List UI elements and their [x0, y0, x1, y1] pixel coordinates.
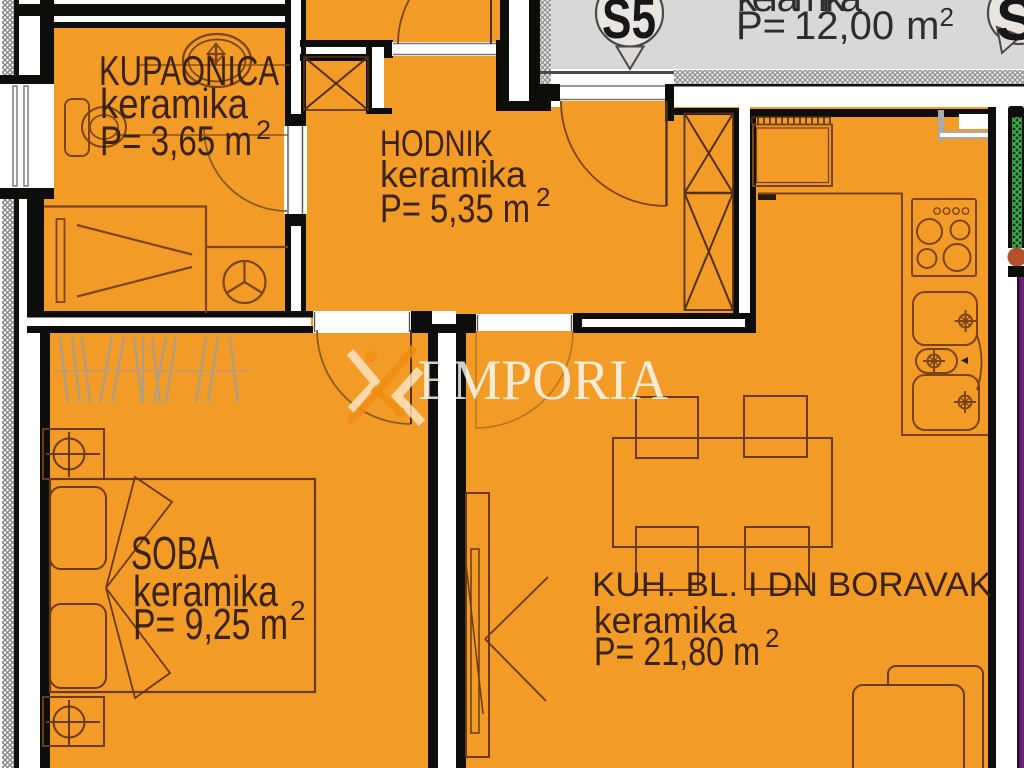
svg-text:2: 2 — [765, 623, 779, 653]
svg-text:S5: S5 — [602, 0, 656, 51]
svg-text:2: 2 — [256, 115, 271, 145]
svg-text:S: S — [996, 0, 1024, 53]
svg-text:2: 2 — [536, 182, 550, 212]
svg-text:P=12,00m2: P=12,00m2 — [736, 2, 954, 48]
svg-text:P= 5,35 m: P= 5,35 m — [380, 187, 530, 231]
svg-text:2: 2 — [290, 595, 306, 626]
svg-text:P= 9,25 m: P= 9,25 m — [133, 600, 288, 649]
svg-text:EMPORIA: EMPORIA — [418, 349, 668, 412]
svg-text:KUH. BL. I DN BORAVAK: KUH. BL. I DN BORAVAK — [592, 566, 992, 604]
svg-text:P= 3,65 m: P= 3,65 m — [100, 117, 252, 164]
svg-text:P= 21,80 m: P= 21,80 m — [594, 630, 760, 674]
